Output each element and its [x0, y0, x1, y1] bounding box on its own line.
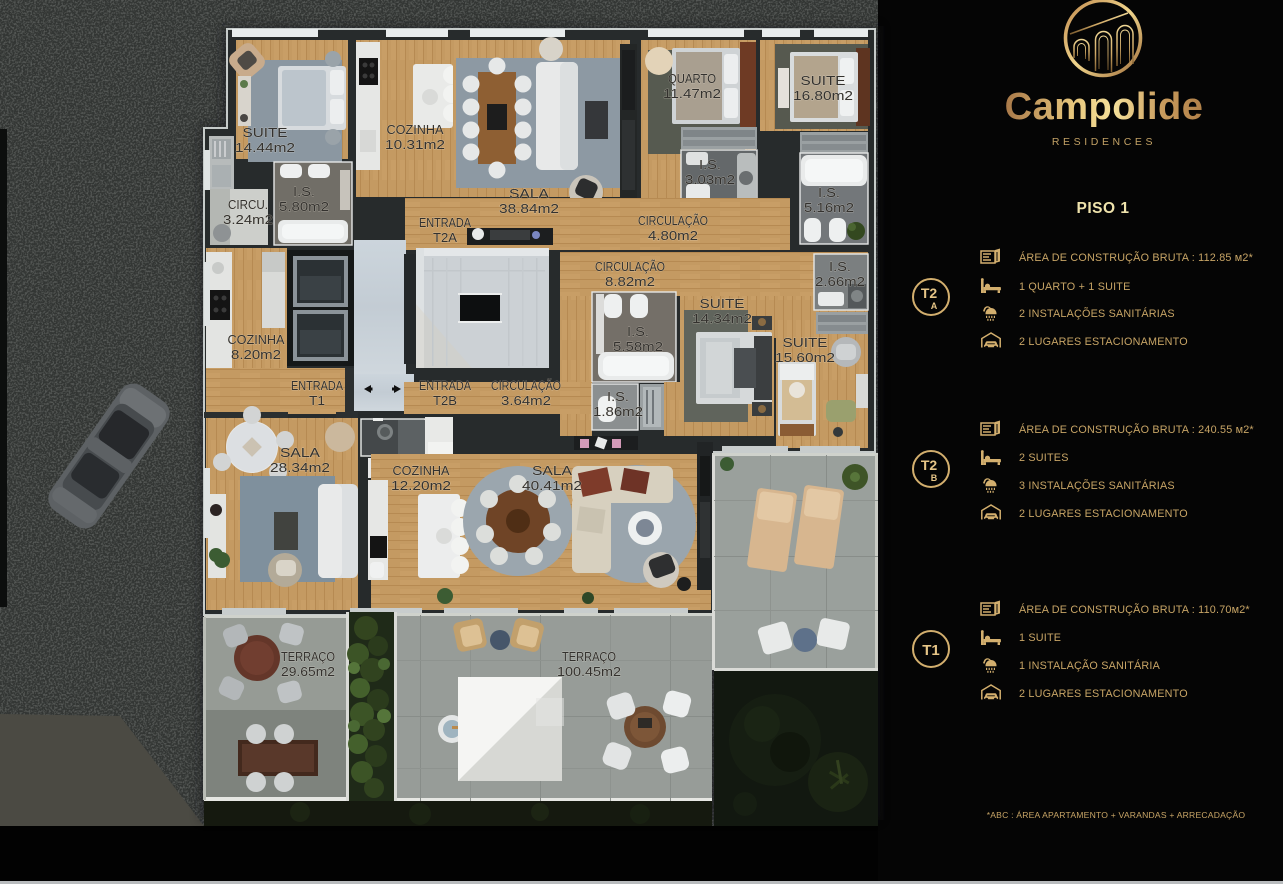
svg-text:B: B — [931, 473, 938, 483]
svg-text:CIRCULAÇÃO: CIRCULAÇÃO — [595, 259, 665, 274]
svg-text:10.31m2: 10.31m2 — [385, 137, 445, 152]
svg-text:14.34m2: 14.34m2 — [692, 311, 752, 326]
svg-text:Campolide: Campolide — [1005, 86, 1204, 128]
svg-text:12.20m2: 12.20m2 — [391, 478, 451, 493]
svg-text:4.80m2: 4.80m2 — [648, 228, 698, 243]
svg-text:I.S.: I.S. — [829, 259, 851, 274]
svg-text:T2: T2 — [921, 285, 938, 301]
svg-text:T2A: T2A — [433, 230, 457, 245]
svg-text:I.S.: I.S. — [607, 389, 629, 404]
svg-text:ÁREA DE CONSTRUÇÃO BRUTA : 24: ÁREA DE CONSTRUÇÃO BRUTA : 240.55 м2* — [1019, 423, 1254, 436]
svg-text:PISO 1: PISO 1 — [1077, 200, 1130, 217]
svg-text:ENTRADA: ENTRADA — [419, 215, 471, 230]
svg-text:2.66m2: 2.66m2 — [815, 274, 865, 289]
svg-text:T2: T2 — [921, 457, 938, 473]
svg-text:T1: T1 — [922, 642, 940, 659]
svg-text:2 LUGARES ESTACIONAMENTO: 2 LUGARES ESTACIONAMENTO — [1019, 688, 1188, 700]
svg-text:29.65m2: 29.65m2 — [281, 664, 335, 679]
svg-text:SUITE: SUITE — [783, 335, 828, 350]
svg-text:11.47m2: 11.47m2 — [663, 86, 721, 101]
svg-text:2 SUITES: 2 SUITES — [1019, 452, 1069, 464]
svg-text:SALA: SALA — [532, 463, 572, 478]
svg-text:T1: T1 — [309, 393, 325, 408]
svg-text:2 LUGARES ESTACIONAMENTO: 2 LUGARES ESTACIONAMENTO — [1019, 508, 1188, 520]
svg-text:QUARTO: QUARTO — [668, 71, 716, 86]
svg-text:3.24m2: 3.24m2 — [223, 212, 273, 227]
svg-text:RESIDENCES: RESIDENCES — [1052, 136, 1156, 148]
svg-text:COZINHA: COZINHA — [387, 122, 444, 137]
svg-text:3.03m2: 3.03m2 — [685, 172, 735, 187]
svg-text:*ABC : ÁREA APARTAMENTO + VAR: *ABC : ÁREA APARTAMENTO + VARANDAS + ARR… — [987, 810, 1246, 820]
svg-text:28.34m2: 28.34m2 — [270, 460, 330, 475]
svg-text:SUITE: SUITE — [700, 296, 745, 311]
svg-text:TERRAÇO: TERRAÇO — [281, 649, 335, 664]
svg-text:5.16m2: 5.16m2 — [804, 200, 854, 215]
svg-text:1 INSTALAÇÃO SANITÁRIA: 1 INSTALAÇÃO SANITÁRIA — [1019, 659, 1161, 672]
svg-text:SALA: SALA — [509, 186, 549, 201]
svg-text:COZINHA: COZINHA — [228, 332, 285, 347]
svg-text:I.S.: I.S. — [627, 324, 649, 339]
svg-text:38.84m2: 38.84m2 — [499, 201, 559, 216]
svg-text:15.60m2: 15.60m2 — [775, 350, 835, 365]
svg-text:I.S.: I.S. — [293, 184, 315, 199]
svg-text:ÁREA DE CONSTRUÇÃO BRUTA : 11: ÁREA DE CONSTRUÇÃO BRUTA : 112.85 м2* — [1019, 251, 1254, 264]
svg-text:2 LUGARES ESTACIONAMENTO: 2 LUGARES ESTACIONAMENTO — [1019, 336, 1188, 348]
svg-text:100.45m2: 100.45m2 — [557, 664, 621, 679]
svg-text:3.64m2: 3.64m2 — [501, 393, 551, 408]
svg-text:3 INSTALAÇÕES SANITÁRIAS: 3 INSTALAÇÕES SANITÁRIAS — [1019, 479, 1175, 492]
svg-text:SUITE: SUITE — [243, 125, 288, 140]
svg-text:14.44m2: 14.44m2 — [235, 140, 295, 155]
svg-text:CIRCULAÇÃO: CIRCULAÇÃO — [491, 378, 561, 393]
svg-text:TERRAÇO: TERRAÇO — [562, 649, 616, 664]
svg-text:ENTRADA: ENTRADA — [291, 378, 343, 393]
svg-text:1 SUITE: 1 SUITE — [1019, 632, 1061, 644]
svg-text:I.S.: I.S. — [818, 185, 840, 200]
svg-text:SALA: SALA — [280, 445, 320, 460]
svg-text:5.80m2: 5.80m2 — [279, 199, 329, 214]
svg-text:1 QUARTO + 1 SUITE: 1 QUARTO + 1 SUITE — [1019, 281, 1131, 293]
svg-text:8.20m2: 8.20m2 — [231, 347, 281, 362]
svg-text:16.80m2: 16.80m2 — [793, 88, 853, 103]
svg-text:CIRCULAÇÃO: CIRCULAÇÃO — [638, 213, 708, 228]
svg-text:CIRCU.: CIRCU. — [228, 197, 268, 212]
svg-text:SUITE: SUITE — [801, 73, 846, 88]
svg-text:40.41m2: 40.41m2 — [522, 478, 582, 493]
svg-text:COZINHA: COZINHA — [393, 463, 450, 478]
svg-text:ENTRADA: ENTRADA — [419, 378, 471, 393]
svg-text:ÁREA DE CONSTRUÇÃO BRUTA : 11: ÁREA DE CONSTRUÇÃO BRUTA : 110.70м2* — [1019, 603, 1250, 616]
svg-text:I.S.: I.S. — [699, 157, 721, 172]
svg-text:2 INSTALAÇÕES SANITÁRIAS: 2 INSTALAÇÕES SANITÁRIAS — [1019, 307, 1175, 320]
svg-text:A: A — [931, 301, 938, 311]
svg-text:T2B: T2B — [433, 393, 457, 408]
svg-text:8.82m2: 8.82m2 — [605, 274, 655, 289]
svg-text:5.58m2: 5.58m2 — [613, 339, 663, 354]
svg-text:1.86m2: 1.86m2 — [593, 404, 643, 419]
